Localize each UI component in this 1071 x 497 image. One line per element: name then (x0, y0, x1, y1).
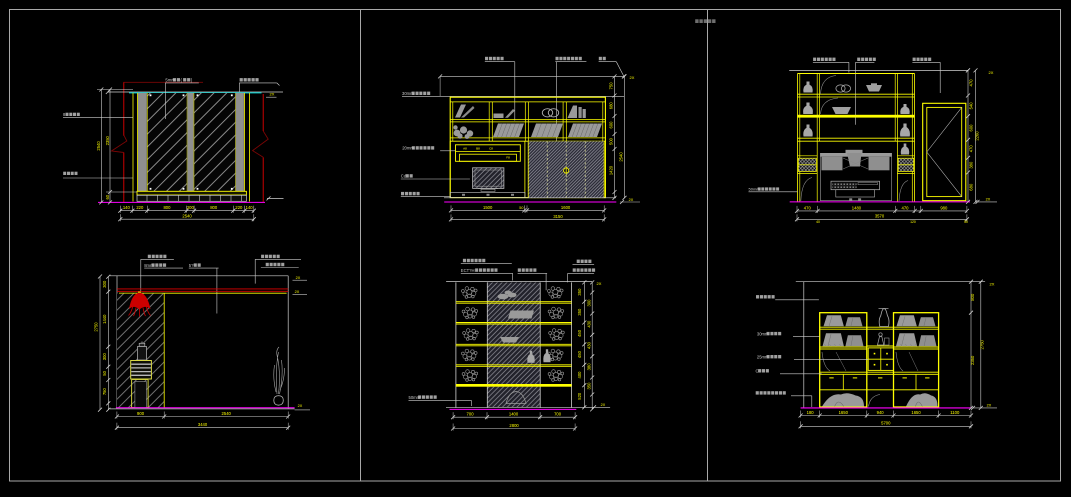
svg-text:470: 470 (804, 205, 812, 210)
svg-text:430: 430 (587, 341, 592, 349)
svg-text:2350: 2350 (105, 135, 110, 145)
svg-text:C8: C8 (489, 147, 493, 151)
svg-text:450: 450 (577, 329, 582, 337)
svg-text:540: 540 (969, 102, 974, 110)
svg-text:3440: 3440 (198, 422, 208, 427)
svg-text:220: 220 (136, 205, 144, 210)
svg-text:750: 750 (608, 82, 613, 90)
svg-text:470: 470 (902, 205, 910, 210)
svg-text:5?: 5? (189, 263, 194, 268)
svg-text:2750: 2750 (94, 322, 99, 332)
svg-text:680: 680 (608, 102, 613, 110)
svg-text:2X: 2X (270, 92, 275, 97)
svg-text:1500: 1500 (483, 205, 493, 210)
svg-text:2260: 2260 (975, 131, 980, 141)
svg-text:5700: 5700 (881, 421, 891, 426)
svg-text:40: 40 (816, 220, 820, 224)
svg-text:470: 470 (969, 79, 974, 87)
svg-text:700: 700 (554, 412, 562, 417)
svg-text:600: 600 (969, 124, 974, 132)
svg-text:350: 350 (577, 288, 582, 296)
svg-text:2X: 2X (601, 403, 606, 407)
svg-text:450: 450 (577, 350, 582, 358)
svg-text:B8: B8 (476, 147, 480, 151)
svg-text:2X: 2X (296, 276, 301, 280)
svg-text:2540: 2540 (619, 152, 624, 162)
svg-text:1440: 1440 (102, 314, 107, 324)
svg-text:140: 140 (123, 205, 131, 210)
svg-text:520: 520 (577, 392, 582, 400)
svg-text:1650: 1650 (839, 410, 849, 415)
svg-text:1650: 1650 (911, 410, 921, 415)
svg-text:350: 350 (577, 308, 582, 316)
svg-text:1100: 1100 (950, 410, 960, 415)
svg-text:2X: 2X (987, 404, 992, 408)
svg-text:1420: 1420 (608, 165, 613, 175)
svg-text:F8: F8 (506, 156, 510, 160)
svg-text:220: 220 (235, 205, 243, 210)
svg-text:140: 140 (246, 205, 254, 210)
svg-text:1400: 1400 (509, 412, 519, 417)
svg-text:3570: 3570 (875, 214, 885, 219)
svg-text:50: 50 (102, 370, 107, 375)
svg-text:2350: 2350 (970, 355, 975, 365)
svg-text:2X: 2X (986, 198, 991, 202)
svg-text:180: 180 (807, 410, 815, 415)
svg-text:500: 500 (608, 137, 613, 145)
svg-text:120: 120 (910, 220, 916, 224)
svg-text:750: 750 (102, 387, 107, 395)
svg-text:2540: 2540 (96, 141, 101, 151)
svg-text:800: 800 (970, 293, 975, 301)
svg-text:430: 430 (587, 320, 592, 328)
svg-text:2750: 2750 (979, 339, 984, 349)
svg-text:980: 980 (940, 205, 948, 210)
svg-text:A8: A8 (463, 147, 467, 151)
svg-text:2X: 2X (295, 290, 300, 294)
svg-text:1480: 1480 (852, 205, 862, 210)
svg-text:3150: 3150 (553, 214, 563, 219)
svg-text:2800: 2800 (509, 423, 519, 428)
svg-text:2X: 2X (630, 75, 635, 80)
svg-text:2540: 2540 (182, 214, 192, 219)
svg-text:940: 940 (877, 410, 885, 415)
svg-text:300: 300 (102, 280, 107, 288)
svg-text:900: 900 (137, 411, 145, 416)
svg-text:50: 50 (964, 220, 968, 224)
svg-text:600: 600 (608, 121, 613, 129)
svg-text:380: 380 (969, 161, 974, 169)
svg-text:800: 800 (163, 205, 171, 210)
svg-text:300: 300 (102, 353, 107, 361)
svg-text:2540: 2540 (222, 411, 232, 416)
svg-text:400: 400 (577, 371, 582, 379)
svg-text:50: 50 (519, 206, 523, 210)
svg-text:200: 200 (187, 205, 195, 210)
svg-text:ECT?H: ECT?H (461, 268, 475, 273)
svg-text:700: 700 (467, 412, 475, 417)
svg-text:680: 680 (969, 183, 974, 191)
svg-text:800: 800 (210, 205, 218, 210)
svg-text:380: 380 (587, 363, 592, 371)
svg-text:1600: 1600 (561, 205, 571, 210)
svg-text:2X: 2X (989, 70, 994, 75)
svg-text:470: 470 (969, 145, 974, 153)
svg-text:2X: 2X (990, 281, 995, 286)
svg-text:2X: 2X (597, 281, 602, 286)
svg-text:C: C (756, 369, 759, 374)
svg-text:2X: 2X (629, 198, 634, 202)
svg-text:60: 60 (105, 194, 110, 199)
svg-text:350: 350 (587, 382, 592, 390)
svg-text:300: 300 (587, 299, 592, 307)
svg-text:2X: 2X (298, 404, 303, 408)
